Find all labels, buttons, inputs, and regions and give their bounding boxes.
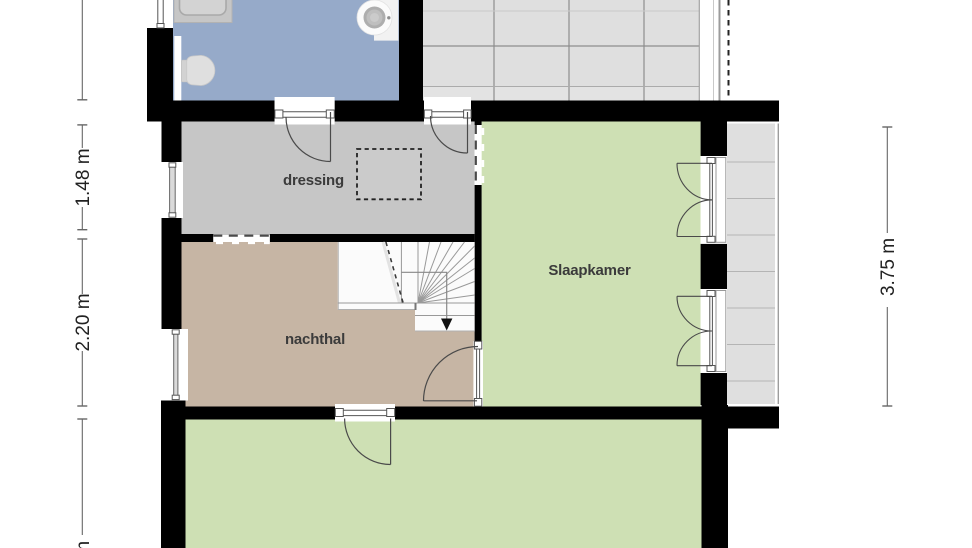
svg-text:5.10 m: 5.10 m — [73, 541, 94, 548]
svg-text:1.48 m: 1.48 m — [73, 148, 94, 206]
svg-text:2.20 m: 2.20 m — [73, 293, 94, 351]
svg-text:nachthal: nachthal — [285, 331, 345, 348]
svg-text:3.75 m: 3.75 m — [878, 238, 899, 296]
svg-text:Slaapkamer: Slaapkamer — [548, 262, 631, 279]
svg-text:dressing: dressing — [283, 172, 344, 189]
